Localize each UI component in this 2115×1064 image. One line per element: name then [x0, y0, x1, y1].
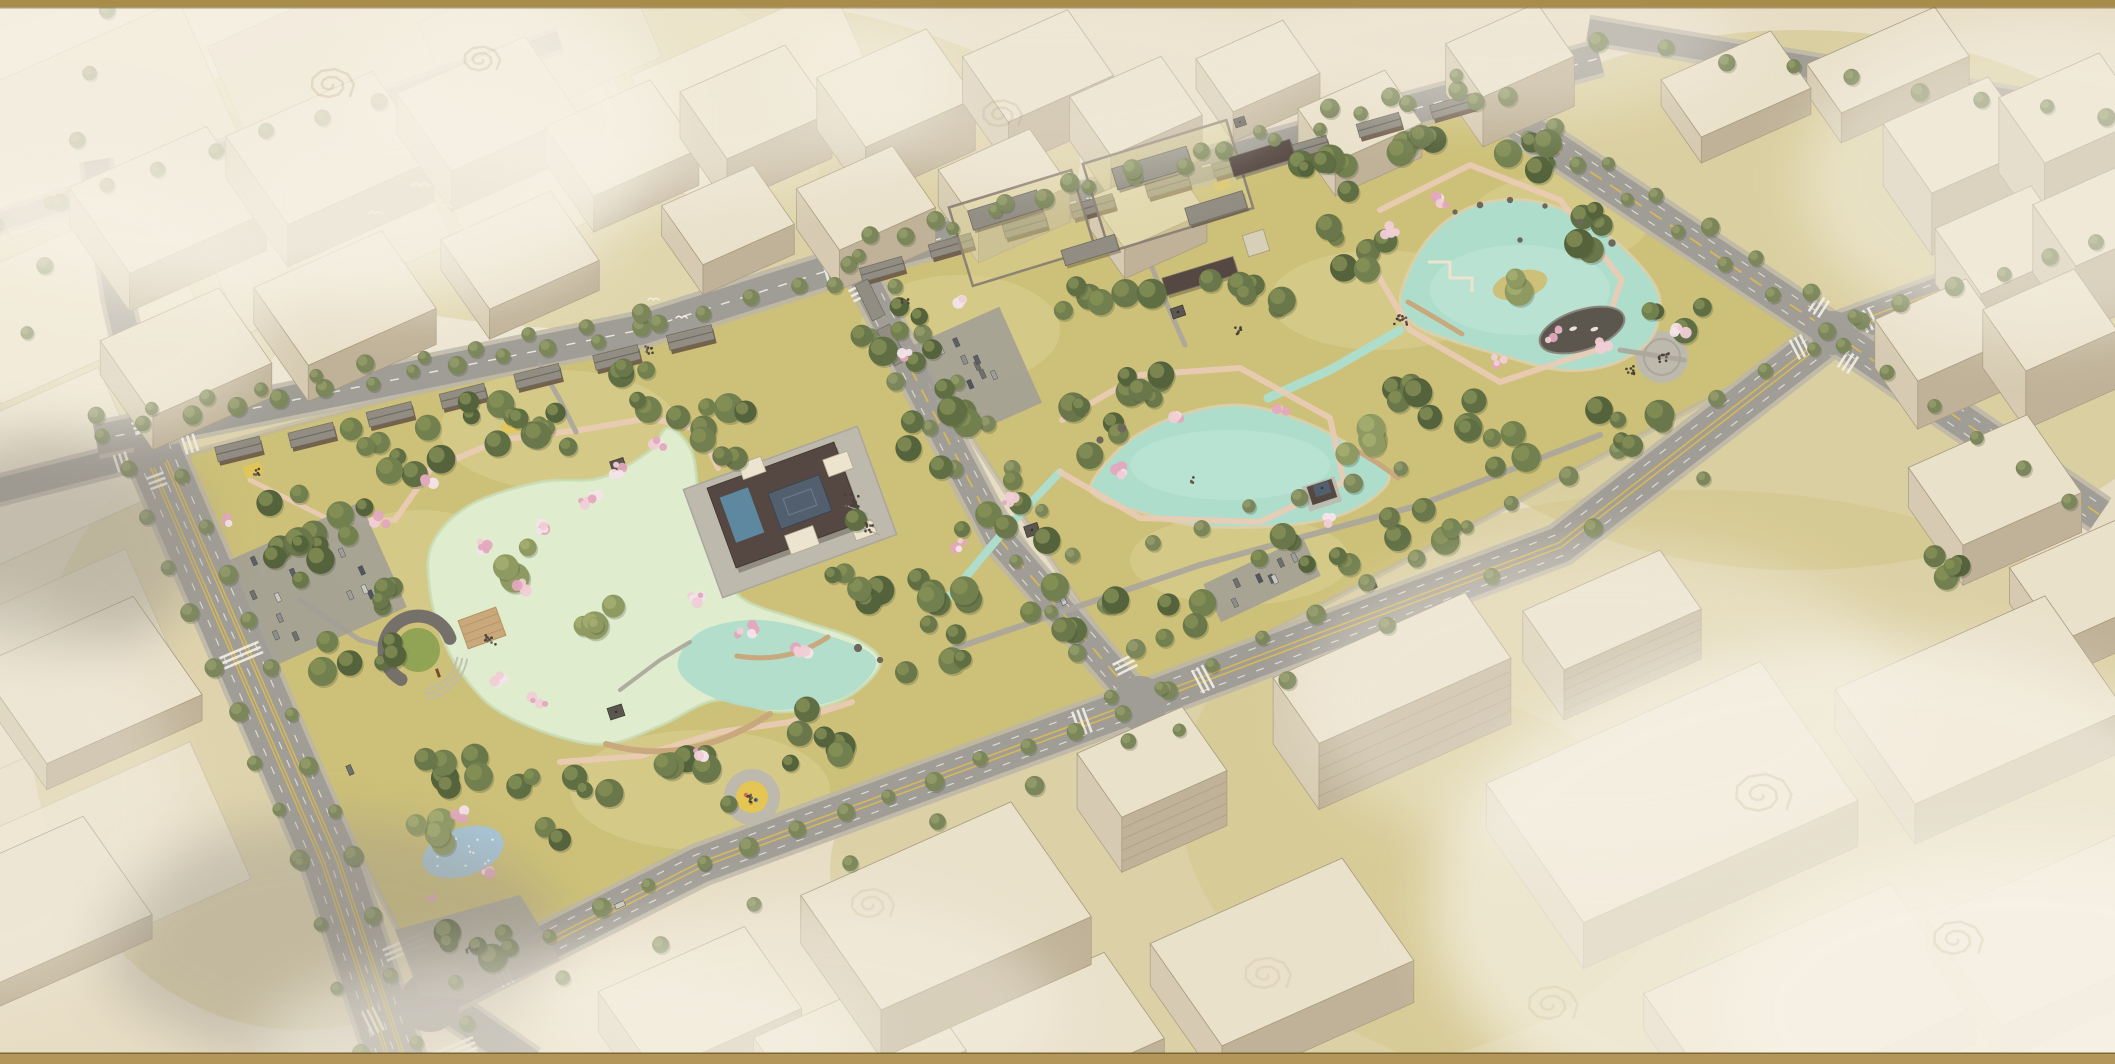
tree-highlight [310, 370, 318, 378]
person [869, 531, 872, 534]
blossom-tree [1545, 337, 1551, 343]
garden-rock [1118, 424, 1127, 433]
person [1239, 326, 1242, 329]
tree-highlight [891, 299, 902, 310]
tree-highlight [996, 517, 1009, 530]
tree-highlight [1643, 303, 1653, 313]
person [853, 499, 856, 502]
tree-highlight [1925, 547, 1937, 559]
tree-highlight [843, 856, 852, 865]
tree-highlight [310, 659, 326, 675]
tree-highlight [2017, 461, 2026, 470]
tree-highlight [417, 417, 431, 431]
tree-highlight [495, 556, 509, 570]
tree-highlight [1358, 241, 1371, 254]
tree-highlight [589, 618, 598, 627]
tree-highlight [1945, 559, 1955, 569]
person [850, 493, 853, 496]
tree-highlight [1149, 363, 1164, 378]
tree-highlight [1345, 475, 1356, 486]
person [1667, 352, 1670, 355]
tree-highlight [357, 500, 367, 510]
tree-highlight [1130, 380, 1143, 393]
tree-highlight [175, 470, 183, 478]
garden-rock [854, 644, 862, 652]
tree-highlight [1389, 391, 1402, 404]
tree-highlight [889, 280, 897, 288]
blossom-tree [692, 597, 703, 608]
person [749, 794, 752, 797]
tree-highlight [403, 463, 417, 477]
tree-highlight [1971, 432, 1979, 440]
tree-highlight [1035, 529, 1050, 544]
garden-rock [1542, 203, 1547, 208]
blossom-tree [897, 348, 907, 358]
tree-highlight [928, 212, 938, 222]
tree-highlight [1502, 423, 1516, 437]
tree-highlight [1174, 725, 1181, 732]
tree-highlight [790, 822, 799, 831]
person [651, 351, 654, 354]
tree-highlight [407, 366, 414, 373]
tree-highlight [1848, 310, 1856, 318]
tree-highlight [1139, 281, 1155, 297]
blossom-tree [1677, 325, 1683, 331]
tree-highlight [699, 400, 709, 410]
tree-highlight [329, 805, 337, 813]
tree-highlight [1354, 107, 1362, 115]
blossom-tree [1117, 470, 1126, 479]
blossom-tree [512, 580, 523, 591]
tree-highlight [842, 257, 851, 266]
tree-highlight [497, 350, 505, 358]
tree-highlight [1443, 520, 1454, 531]
tree-highlight [1819, 324, 1829, 334]
tree-highlight [1928, 400, 1936, 408]
tree-highlight [940, 649, 955, 664]
person [1240, 328, 1243, 331]
tree-highlight [1292, 490, 1302, 500]
tree-highlight [926, 773, 937, 784]
blossom-tree [1324, 519, 1333, 528]
tree-highlight [1055, 302, 1066, 313]
blossom-tree [653, 437, 661, 445]
tree-highlight [1766, 288, 1775, 297]
tree-highlight [697, 307, 706, 316]
tree-highlight [903, 412, 916, 425]
blossom-tree [615, 470, 624, 479]
tree-highlight [1078, 444, 1093, 459]
blossom-tree [956, 546, 963, 553]
tree-highlight [1308, 606, 1319, 617]
person [490, 637, 493, 640]
tree-highlight [655, 755, 668, 768]
tree-highlight [407, 816, 419, 828]
tree-highlight [1119, 368, 1130, 379]
tree-highlight [1045, 606, 1053, 614]
tree-highlight [1587, 398, 1602, 413]
person [1627, 371, 1630, 374]
person [857, 495, 860, 498]
tree-highlight [1409, 551, 1419, 561]
bottom-border-line [0, 1053, 2115, 1055]
tree-highlight [1837, 339, 1845, 347]
tree-highlight [1845, 70, 1854, 79]
person [907, 298, 910, 301]
person [490, 641, 493, 644]
tree-highlight [1405, 380, 1421, 396]
tree-highlight [1547, 119, 1557, 129]
mist-cloud [230, 90, 630, 310]
tree-highlight [300, 758, 310, 768]
tree-highlight [1881, 366, 1889, 374]
tree-highlight [1496, 141, 1511, 156]
tree-highlight [255, 383, 263, 391]
tree-highlight [2063, 495, 2072, 504]
tree-highlight [829, 743, 843, 757]
tree-highlight [1272, 525, 1286, 539]
tree-highlight [339, 527, 350, 538]
tree-highlight [229, 398, 240, 409]
tree-highlight [1069, 645, 1079, 655]
person [1191, 481, 1194, 484]
tree-highlight [1300, 557, 1310, 567]
person [907, 302, 910, 305]
tree-highlight [630, 393, 639, 402]
tree-highlight [931, 457, 944, 470]
tree-highlight [1603, 158, 1610, 165]
pagoda-finial [1321, 487, 1324, 490]
tree-highlight [449, 357, 459, 367]
tree-highlight [1337, 444, 1350, 457]
tree-highlight [1026, 777, 1037, 788]
tree-highlight [1122, 734, 1131, 743]
person [850, 504, 853, 507]
tree-highlight [373, 593, 382, 602]
person [1237, 331, 1240, 334]
tree-highlight [1389, 141, 1404, 156]
scene-canvas [0, 0, 2115, 1064]
tree-highlight [560, 439, 570, 449]
tree-highlight [376, 579, 388, 591]
tree-highlight [1256, 632, 1264, 640]
bottom-border-band [0, 1054, 2115, 1064]
top-border-band [0, 0, 2115, 7]
tree-highlight [1339, 182, 1351, 194]
tree-highlight [828, 278, 837, 287]
tree-highlight [639, 363, 649, 373]
garden-rock [1477, 202, 1484, 209]
blossom-tree [1494, 360, 1500, 366]
blossom-tree [1442, 201, 1449, 208]
person [869, 524, 872, 527]
tree-highlight [466, 764, 482, 780]
tree-highlight [1243, 500, 1250, 507]
tree-highlight [1587, 203, 1596, 212]
blossom-tree [1272, 403, 1283, 414]
tree-highlight [1113, 281, 1129, 297]
tree-highlight [952, 578, 968, 594]
person [257, 468, 260, 471]
tree-highlight [1332, 256, 1347, 271]
tree-highlight [1487, 458, 1498, 469]
pavilion-finial [1031, 529, 1033, 531]
person [845, 505, 848, 508]
tree-highlight [385, 645, 398, 658]
tree-highlight [1127, 641, 1138, 652]
blossom-tree [496, 671, 504, 679]
tree-highlight [1157, 630, 1167, 640]
tree-highlight [1507, 270, 1518, 281]
blossom-tree [483, 546, 490, 553]
tree-highlight [1566, 231, 1582, 247]
tree-highlight [1585, 520, 1595, 530]
tree-highlight [604, 596, 617, 609]
tree-highlight [1527, 158, 1542, 173]
tree-highlight [616, 360, 626, 370]
tree-highlight [1359, 416, 1375, 432]
tree-highlight [888, 374, 898, 384]
tree-highlight [1461, 521, 1468, 528]
tree-highlight [740, 839, 751, 850]
tree-highlight [1560, 468, 1571, 479]
tree-highlight [1414, 500, 1427, 513]
tree-highlight [550, 830, 562, 842]
person [1665, 359, 1668, 362]
person [1662, 354, 1665, 357]
tree-highlight [248, 757, 256, 765]
tree-highlight [815, 728, 827, 740]
tree-highlight [1269, 134, 1276, 141]
person [1633, 371, 1636, 374]
tree-highlight [286, 709, 294, 717]
tree-highlight [909, 570, 921, 582]
tree-highlight [1694, 299, 1704, 309]
person [864, 530, 867, 533]
tree-highlight [1611, 413, 1620, 422]
garden-rock [1517, 237, 1522, 242]
person [866, 525, 869, 528]
tree-highlight [510, 410, 521, 421]
tree-highlight [1195, 521, 1204, 530]
tree-highlight [947, 626, 958, 637]
person [1401, 315, 1404, 318]
tree-highlight [721, 797, 731, 807]
tree-highlight [1010, 555, 1017, 562]
tree-highlight [919, 587, 934, 602]
tree-highlight [668, 407, 681, 420]
person [1393, 323, 1396, 326]
tree-highlight [1280, 673, 1290, 683]
tree-highlight [520, 540, 530, 550]
tree-highlight [973, 752, 981, 760]
tree-highlight [592, 336, 600, 344]
tree-highlight [1004, 472, 1015, 483]
person [1192, 476, 1195, 479]
person [857, 505, 860, 508]
person [1401, 318, 1404, 321]
blossom-tree [459, 814, 468, 823]
tree-highlight [1036, 505, 1043, 512]
tree-highlight [258, 492, 272, 506]
tree-highlight [1356, 258, 1370, 272]
blossom-tree [659, 443, 667, 451]
tree-highlight [341, 419, 354, 432]
tree-highlight [1066, 549, 1074, 557]
tree-highlight [273, 804, 280, 811]
tree-highlight [692, 428, 706, 442]
tree-highlight [383, 634, 394, 645]
tree-highlight [416, 750, 429, 763]
tree-highlight [1808, 343, 1815, 350]
tree-highlight [838, 804, 848, 814]
pond-speckle [491, 838, 493, 840]
tree-highlight [293, 573, 302, 582]
blossom-tree [1491, 354, 1498, 361]
person [644, 345, 647, 348]
tree-highlight [1759, 364, 1767, 372]
tree-highlight [1647, 402, 1663, 418]
person [253, 473, 256, 476]
blossom-tree [1168, 411, 1180, 423]
tree-highlight [714, 448, 725, 459]
person [843, 493, 846, 496]
tree-highlight [1155, 683, 1162, 690]
blossom-tree [382, 519, 391, 528]
tree-highlight [1622, 194, 1629, 201]
blossom-tree [747, 629, 756, 638]
blossom-tree [1380, 229, 1390, 239]
tree-highlight [1788, 60, 1796, 68]
tree-highlight [651, 316, 661, 326]
tree-highlight [329, 503, 344, 518]
tree-highlight [358, 438, 368, 448]
tree-highlight [580, 320, 588, 328]
tree-highlight [853, 250, 861, 258]
tree-highlight [206, 660, 217, 671]
tree-highlight [1571, 158, 1580, 167]
tree-highlight [1043, 575, 1059, 591]
tree-highlight [989, 205, 997, 213]
person [646, 350, 649, 353]
tree-highlight [633, 305, 643, 315]
tree-highlight [997, 195, 1007, 205]
tree-highlight [264, 660, 273, 669]
person [494, 643, 497, 646]
tree-highlight [915, 326, 925, 336]
tree-highlight [536, 818, 547, 829]
tree-highlight [955, 522, 964, 531]
person [1396, 318, 1399, 321]
tree-highlight [1237, 286, 1248, 297]
tree-highlight [271, 391, 282, 402]
blossom-tree [373, 511, 384, 522]
tree-highlight [1360, 575, 1370, 585]
tree-highlight [1105, 691, 1113, 699]
tree-highlight [265, 547, 278, 560]
person [754, 799, 757, 802]
tree-highlight [921, 617, 931, 627]
blossom-tree [1002, 500, 1007, 505]
tree-highlight [1185, 615, 1199, 629]
blossom-tree [613, 462, 619, 468]
tree-highlight [1709, 391, 1719, 401]
tree-highlight [1718, 258, 1726, 266]
tree-highlight [1299, 162, 1308, 171]
person [1658, 357, 1661, 360]
tree-highlight [930, 815, 939, 824]
garden-rock [1608, 239, 1615, 246]
tree-highlight [318, 632, 330, 644]
tree-highlight [1053, 619, 1066, 632]
blossom-tree [530, 698, 535, 703]
tree-highlight [1622, 436, 1634, 448]
tree-highlight [182, 605, 192, 615]
tree-highlight [231, 703, 242, 714]
tree-highlight [459, 393, 471, 405]
tree-highlight [1314, 152, 1326, 164]
tree-highlight [1036, 190, 1047, 201]
person [1659, 360, 1662, 363]
person [1625, 368, 1628, 371]
person [650, 347, 653, 350]
tree-highlight [1649, 189, 1657, 197]
tree-highlight [947, 223, 954, 230]
tree-highlight [1073, 398, 1083, 408]
person [1405, 321, 1408, 324]
tree-highlight [1068, 278, 1079, 289]
tree-highlight [367, 378, 375, 386]
pond-speckle [476, 839, 478, 841]
person [484, 639, 487, 642]
tree-highlight [525, 770, 534, 779]
tree-highlight [792, 279, 801, 288]
person [1665, 356, 1668, 359]
tree-highlight [540, 340, 550, 350]
tree-highlight [897, 437, 911, 451]
tree-highlight [429, 447, 445, 463]
tree-highlight [242, 613, 251, 622]
garden-rock [1577, 219, 1584, 226]
garden-rock [1096, 436, 1103, 443]
blossom-tree [1005, 492, 1014, 501]
tree-highlight [1321, 100, 1332, 111]
blossom-tree [1595, 342, 1607, 354]
blossom-tree [225, 520, 232, 527]
person [1630, 367, 1633, 370]
tree-highlight [1484, 430, 1494, 440]
person [1405, 316, 1408, 319]
blossom-tree [542, 701, 548, 707]
tree-highlight [339, 652, 353, 666]
person [255, 469, 258, 472]
mist-cloud [1300, 540, 1900, 860]
person [871, 524, 874, 527]
tree-highlight [291, 486, 301, 496]
tree-highlight [357, 356, 367, 366]
tree-highlight [955, 651, 965, 661]
tree-highlight [936, 380, 947, 391]
tree-highlight [526, 423, 541, 438]
blossom-tree [736, 627, 743, 634]
tree-highlight [489, 392, 504, 407]
tree-highlight [1116, 706, 1125, 715]
garden-rock [1452, 209, 1457, 214]
tree-highlight [508, 776, 522, 790]
person [1234, 326, 1237, 329]
tree-highlight [1089, 291, 1104, 306]
tree-highlight [578, 783, 587, 792]
